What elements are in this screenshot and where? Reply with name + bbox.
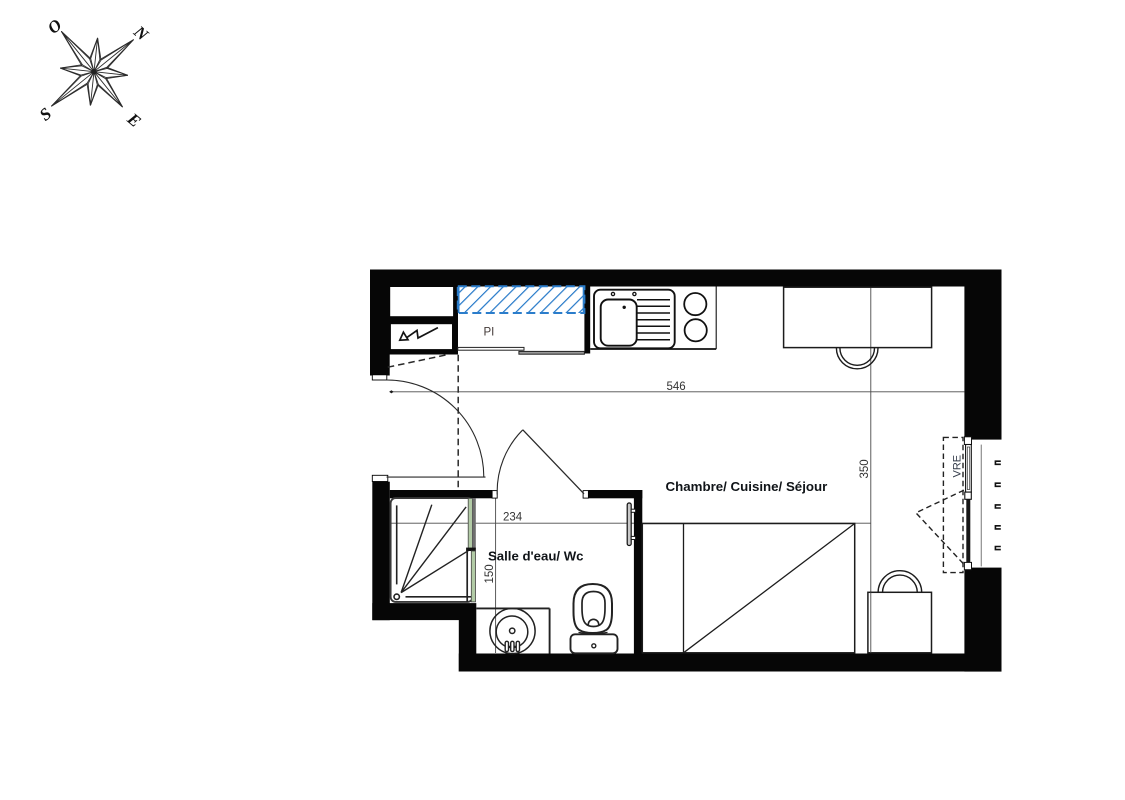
svg-text:N: N xyxy=(129,21,152,45)
svg-text:VRE: VRE xyxy=(952,455,964,478)
svg-text:Chambre/ Cuisine/ Séjour: Chambre/ Cuisine/ Séjour xyxy=(666,479,828,494)
svg-text:O: O xyxy=(44,15,66,37)
svg-text:Salle d'eau/ Wc: Salle d'eau/ Wc xyxy=(488,549,583,564)
svg-text:234: 234 xyxy=(503,512,523,524)
svg-text:S: S xyxy=(36,104,55,125)
svg-text:546: 546 xyxy=(667,381,686,393)
svg-text:PI: PI xyxy=(484,327,495,339)
svg-text:E: E xyxy=(123,109,145,131)
svg-text:150: 150 xyxy=(484,564,496,583)
svg-text:350: 350 xyxy=(859,459,871,478)
